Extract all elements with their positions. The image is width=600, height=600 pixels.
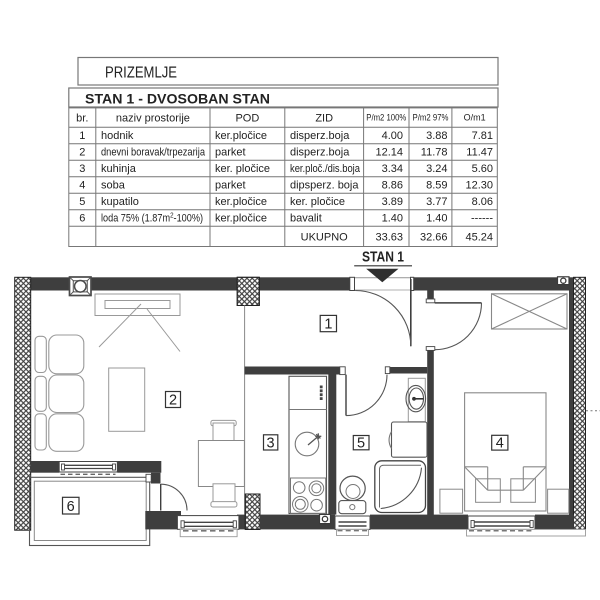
svg-text:45.24: 45.24 — [465, 232, 493, 244]
svg-text:parket: parket — [215, 180, 246, 192]
svg-text:5: 5 — [79, 196, 85, 208]
svg-text:------: ------ — [471, 213, 493, 225]
svg-text:loda 75% (1.87m2-100%): loda 75% (1.87m2-100%) — [101, 211, 203, 225]
svg-text:disperz.boja: disperz.boja — [290, 130, 350, 142]
svg-text:kuhinja: kuhinja — [101, 163, 137, 175]
svg-text:kupatilo: kupatilo — [101, 196, 139, 208]
svg-text:3.24: 3.24 — [426, 163, 447, 175]
svg-text:soba: soba — [101, 180, 126, 192]
svg-text:UKUPNO: UKUPNO — [301, 232, 349, 244]
svg-text:ker. pločice: ker. pločice — [290, 196, 345, 208]
svg-text:3.34: 3.34 — [382, 163, 403, 175]
svg-text:ker.pločice: ker.pločice — [215, 130, 267, 142]
svg-text:3.89: 3.89 — [382, 196, 403, 208]
svg-text:O/m1: O/m1 — [464, 113, 486, 123]
svg-text:P/m2 100%: P/m2 100% — [366, 113, 406, 123]
svg-text:STAN 1 - DVOSOBAN STAN: STAN 1 - DVOSOBAN STAN — [85, 91, 270, 107]
svg-text:33.63: 33.63 — [375, 232, 403, 244]
svg-text:POD: POD — [235, 113, 259, 125]
svg-text:1: 1 — [79, 130, 85, 142]
svg-text:11.78: 11.78 — [421, 147, 448, 159]
svg-text:8.59: 8.59 — [426, 180, 447, 192]
svg-text:dipsperz. boja: dipsperz. boja — [290, 180, 359, 192]
svg-text:6: 6 — [67, 499, 75, 515]
svg-text:5.60: 5.60 — [472, 163, 493, 175]
svg-text:PRIZEMLJE: PRIZEMLJE — [105, 65, 177, 82]
svg-text:STAN 1: STAN 1 — [362, 250, 404, 266]
svg-text:4: 4 — [496, 436, 504, 452]
svg-text:3.88: 3.88 — [426, 130, 447, 142]
svg-text:2: 2 — [169, 393, 177, 409]
svg-text:ker.pločice: ker.pločice — [215, 196, 267, 208]
svg-text:3.77: 3.77 — [426, 196, 447, 208]
svg-text:br.: br. — [76, 113, 88, 125]
svg-text:hodnik: hodnik — [101, 130, 134, 142]
svg-text:ker. pločice: ker. pločice — [215, 163, 270, 175]
svg-text:bavalit: bavalit — [290, 213, 322, 225]
svg-text:8.86: 8.86 — [382, 180, 403, 192]
svg-text:1.40: 1.40 — [426, 213, 447, 225]
svg-text:12.14: 12.14 — [375, 147, 403, 159]
svg-text:32.66: 32.66 — [420, 232, 448, 244]
svg-text:parket: parket — [215, 147, 246, 159]
svg-text:4: 4 — [79, 180, 85, 192]
svg-text:5: 5 — [357, 436, 365, 452]
svg-text:dnevni boravak/trpezarija: dnevni boravak/trpezarija — [101, 147, 206, 159]
svg-text:ZID: ZID — [315, 113, 333, 125]
svg-text:7.81: 7.81 — [472, 130, 493, 142]
svg-text:6: 6 — [79, 213, 85, 225]
svg-text:8.06: 8.06 — [472, 196, 493, 208]
svg-text:1.40: 1.40 — [382, 213, 403, 225]
svg-text:1: 1 — [324, 317, 332, 333]
svg-text:11.47: 11.47 — [466, 147, 493, 159]
svg-text:2: 2 — [79, 147, 85, 159]
svg-text:3: 3 — [79, 163, 85, 175]
svg-text:12.30: 12.30 — [465, 180, 493, 192]
svg-text:naziv prostorije: naziv prostorije — [116, 113, 190, 125]
svg-text:ker.ploč./dis.boja: ker.ploč./dis.boja — [290, 163, 361, 175]
svg-text:3: 3 — [267, 435, 275, 451]
svg-text:ker.pločice: ker.pločice — [215, 213, 267, 225]
svg-text:P/m2 97%: P/m2 97% — [413, 113, 449, 123]
svg-text:disperz.boja: disperz.boja — [290, 147, 350, 159]
svg-text:4.00: 4.00 — [382, 130, 403, 142]
